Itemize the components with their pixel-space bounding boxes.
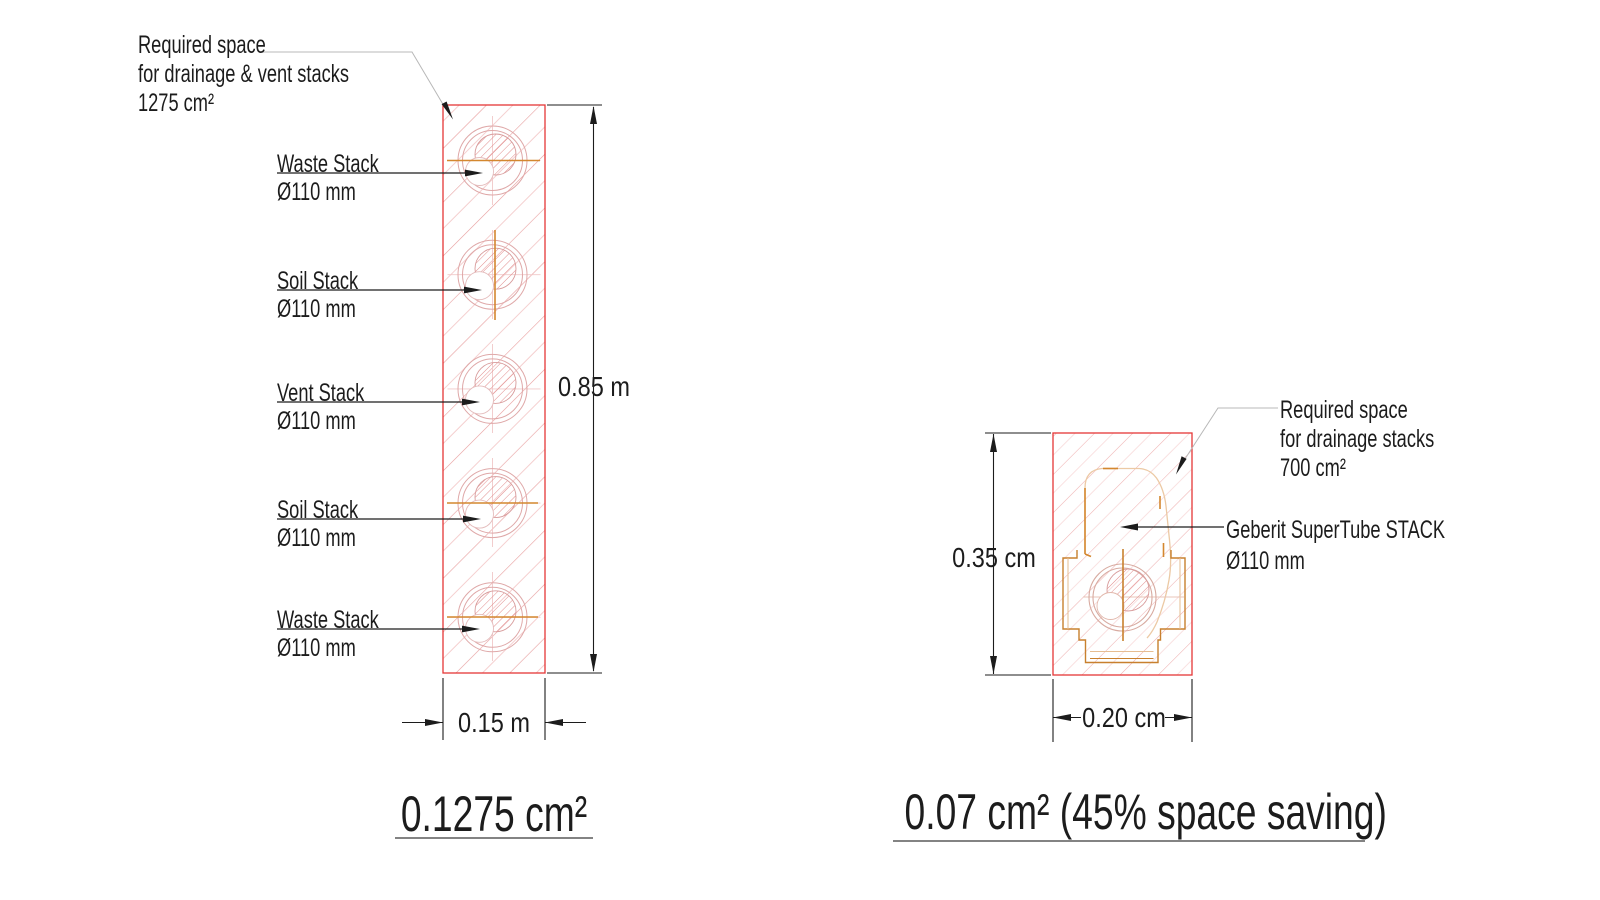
right-width-dim-text: 0.20 cm	[1057, 702, 1191, 734]
stack-label-2-name: Soil Stack	[277, 267, 358, 296]
stack-label-3-name: Vent Stack	[277, 379, 364, 408]
stack-label-2-size: Ø110 mm	[277, 295, 356, 324]
right-annotation-line2: for drainage stacks	[1280, 425, 1434, 454]
left-height-dim-text: 0.85 m	[527, 371, 661, 403]
stack-label-4-name: Soil Stack	[277, 496, 358, 525]
technical-drawing-page: Required space for drainage & vent stack…	[0, 0, 1600, 900]
stack-label-5-size: Ø110 mm	[277, 634, 356, 663]
left-annotation-line2: for drainage & vent stacks	[138, 60, 349, 89]
product-label-line2: Ø110 mm	[1226, 547, 1305, 576]
stack-label-3-size: Ø110 mm	[277, 407, 356, 436]
right-area-caption: 0.07 cm² (45% space saving)	[905, 784, 1352, 842]
stack-label-1-name: Waste Stack	[277, 150, 379, 179]
left-area-caption: 0.1275 cm²	[271, 786, 718, 844]
left-annotation-line3: 1275 cm²	[138, 89, 214, 118]
stack-label-4-size: Ø110 mm	[277, 524, 356, 553]
right-height-dim-text: 0.35 cm	[927, 542, 1061, 574]
left-width-dim-text: 0.15 m	[427, 707, 561, 739]
stack-label-5-name: Waste Stack	[277, 606, 379, 635]
right-annotation-line3: 700 cm²	[1280, 454, 1346, 483]
product-label-line1: Geberit SuperTube STACK	[1226, 516, 1445, 545]
stack-label-1-size: Ø110 mm	[277, 178, 356, 207]
left-annotation-line1: Required space	[138, 31, 266, 60]
right-annotation-line1: Required space	[1280, 396, 1408, 425]
